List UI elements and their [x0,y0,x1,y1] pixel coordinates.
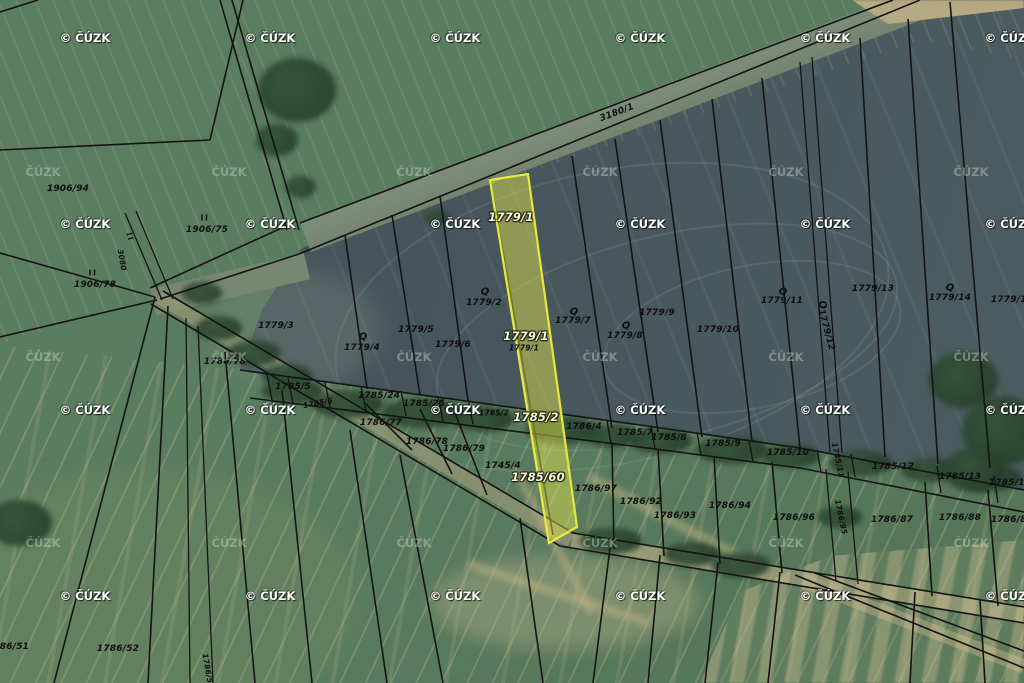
cuzk-watermark: © ČÚZK [430,589,481,603]
parcel-number: 1906/94 [47,184,89,194]
cuzk-watermark: © ČÚZK [60,589,111,603]
parcel-number: 1779/13 [852,284,894,294]
cuzk-watermark: © ČÚZK [430,31,481,45]
land-use-symbol: Q [481,287,490,298]
parcel-number: 1786/77 [360,418,402,428]
land-use-symbol: Q [359,332,368,343]
parcel-number: 1779/12 [816,308,837,351]
land-use-symbol: II [124,232,135,243]
parcel-number: 3080 [116,249,129,272]
map-labels-layer: 3180/11906/94II1906/75II1906/78II3080178… [0,0,1024,683]
land-use-symbol: II [201,214,210,223]
cuzk-watermark-faint: ČÚZK [953,536,988,550]
parcel-number: 1786/87 [871,515,913,525]
parcel-number: 1786/97 [575,484,617,494]
cuzk-watermark: © ČÚZK [60,403,111,417]
cuzk-watermark-faint: ČÚZK [953,350,988,364]
cuzk-watermark: © ČÚZK [800,403,851,417]
parcel-number: 1785/12 [872,462,914,472]
parcel-number: 1786/94 [709,501,751,511]
cuzk-watermark: © ČÚZK [800,31,851,45]
cuzk-watermark-faint: ČÚZK [953,165,988,179]
highlighted-parcel-number: 1785/60 [511,470,565,484]
cuzk-watermark: © ČÚZK [800,217,851,231]
parcel-number: 1779/8 [607,331,643,341]
land-use-symbol: II [89,269,98,278]
parcel-number: 1786/93 [654,511,696,521]
parcel-number: 1785/9 [705,439,741,449]
parcel-number: 1786/88 [939,513,981,523]
cuzk-watermark: © ČÚZK [985,217,1024,231]
parcel-number: 1779/5 [398,325,434,335]
cuzk-watermark-faint: ČÚZK [25,536,60,550]
cuzk-watermark: © ČÚZK [245,589,296,603]
cuzk-watermark-faint: ČÚZK [25,350,60,364]
cuzk-watermark-faint: ČÚZK [768,536,803,550]
cuzk-watermark-faint: ČÚZK [768,165,803,179]
cuzk-watermark: © ČÚZK [985,589,1024,603]
parcel-number: 1785/6 [302,396,333,410]
land-use-symbol: Q [622,321,631,332]
highlighted-parcel-number: 1779/1 [503,329,548,343]
cuzk-watermark-faint: ČÚZK [768,350,803,364]
cuzk-watermark: © ČÚZK [430,403,481,417]
parcel-number: 1779/9 [639,308,675,318]
cuzk-watermark-faint: ČÚZK [582,536,617,550]
cuzk-watermark-faint: ČÚZK [396,536,431,550]
parcel-number: 1785/14 [989,478,1024,488]
parcel-number: 1785/8 [651,433,687,443]
parcel-number: 1779/7 [555,316,591,326]
cuzk-watermark: © ČÚZK [615,589,666,603]
cuzk-watermark-faint: ČÚZK [211,165,246,179]
parcel-number: 1906/78 [74,280,116,290]
parcel-number: 1785/11 [830,442,846,479]
cuzk-watermark: © ČÚZK [615,217,666,231]
parcel-number: 1779/10 [697,325,739,335]
parcel-number: 1785/5 [275,382,311,392]
parcel-number: 1786/95 [833,499,849,536]
parcel-number: 1785/10 [767,448,809,458]
parcel-number: 1786/4 [566,422,602,432]
parcel-number: 1786/92 [620,497,662,507]
parcel-number: 1779/1 [509,344,539,353]
cuzk-watermark: © ČÚZK [985,403,1024,417]
parcel-number: 1786/53 [200,653,215,683]
parcel-number: 1779/6 [435,340,471,350]
cuzk-watermark-faint: ČÚZK [211,350,246,364]
cuzk-watermark-faint: ČÚZK [582,165,617,179]
cuzk-watermark-faint: ČÚZK [396,165,431,179]
highlighted-parcel-number: 1779/1 [488,210,533,224]
parcel-number: 1779/15 [991,295,1024,305]
parcel-number: 1785/13 [939,472,981,482]
parcel-number: 1779/4 [344,343,380,353]
parcel-number: 1786/96 [773,513,815,523]
cuzk-watermark: © ČÚZK [60,31,111,45]
parcel-number: 1906/75 [186,225,228,235]
parcel-number: 1786/52 [97,644,139,654]
cuzk-watermark: © ČÚZK [60,217,111,231]
cuzk-watermark: © ČÚZK [245,31,296,45]
parcel-number: 1786/79 [443,444,485,454]
cuzk-watermark: © ČÚZK [615,403,666,417]
cuzk-watermark-faint: ČÚZK [25,165,60,179]
parcel-number: 1779/2 [466,298,502,308]
land-use-symbol: Q [946,283,955,294]
parcel-number: 1786/89 [991,515,1024,525]
parcel-number: 1786/78 [406,437,448,447]
cuzk-watermark-faint: ČÚZK [211,536,246,550]
cuzk-watermark-faint: ČÚZK [582,350,617,364]
parcel-number: 1779/11 [761,296,803,306]
parcel-number: 1785/24 [358,391,400,401]
cuzk-watermark: © ČÚZK [800,589,851,603]
cadastral-map-viewport[interactable]: 3180/11906/94II1906/75II1906/78II3080178… [0,0,1024,683]
parcel-number: 1785/7 [617,428,653,438]
cuzk-watermark: © ČÚZK [245,403,296,417]
parcel-number: 1779/3 [258,321,294,331]
cuzk-watermark: © ČÚZK [985,31,1024,45]
cuzk-watermark: © ČÚZK [615,31,666,45]
parcel-number: 1779/14 [929,293,971,303]
cuzk-watermark: © ČÚZK [430,217,481,231]
cuzk-watermark: © ČÚZK [245,217,296,231]
cuzk-watermark-faint: ČÚZK [396,350,431,364]
parcel-number: 1786/51 [0,642,29,652]
highlighted-parcel-number: 1785/2 [513,410,558,424]
parcel-number: 3180/1 [598,102,635,124]
parcel-number: 1785/2 [479,409,509,418]
